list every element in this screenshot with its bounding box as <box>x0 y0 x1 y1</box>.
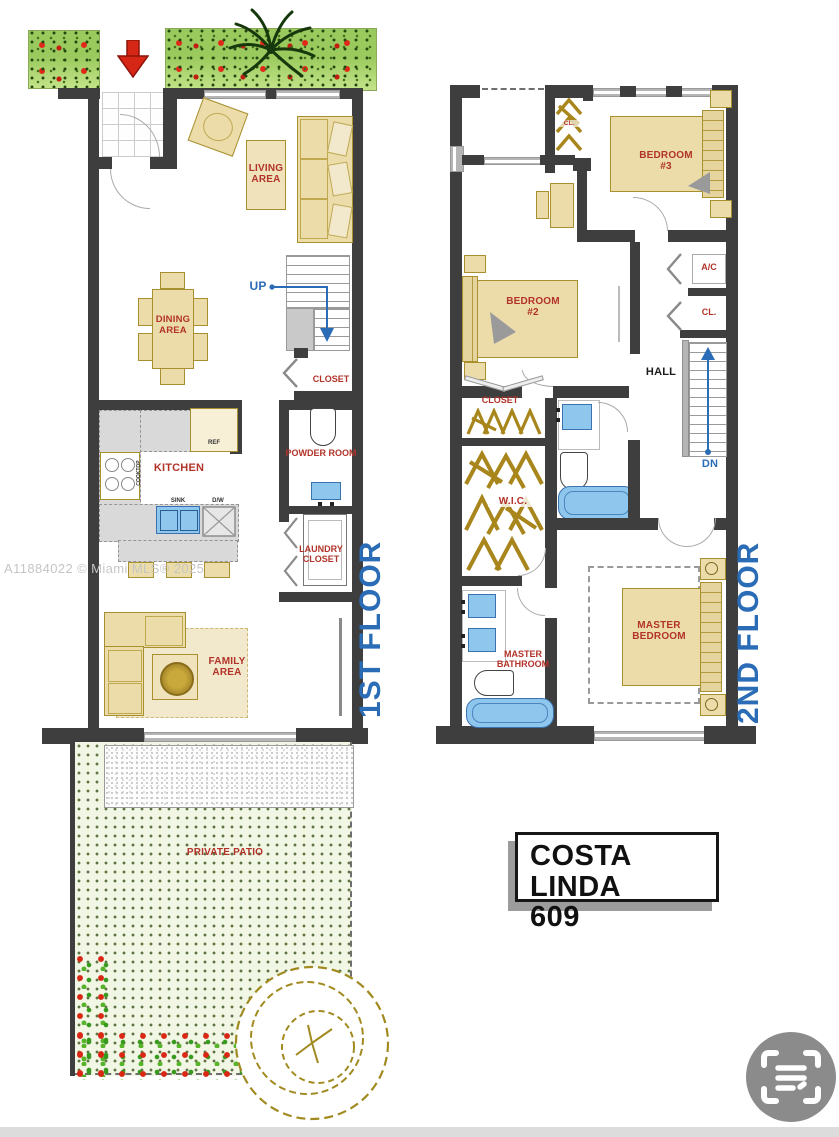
wall-segment <box>436 726 594 744</box>
closet2-label: CLOSET <box>468 396 532 406</box>
ac-door-fold <box>664 252 684 286</box>
patio-slab <box>104 745 354 808</box>
page-edge <box>0 1127 839 1137</box>
unit-plate-number: 609 <box>530 902 706 933</box>
wall-segment <box>540 155 575 165</box>
nightstand <box>700 558 726 580</box>
headboard <box>700 582 722 692</box>
sofa <box>297 116 353 243</box>
scan-logo-icon <box>744 1030 838 1124</box>
master-bathroom-label: MASTER BATHROOM <box>488 650 558 670</box>
bedroom3-label: BEDROOM #3 <box>634 150 698 172</box>
wall-segment <box>450 576 522 586</box>
second-floor-title: 2ND FLOOR <box>732 540 782 726</box>
wall-segment <box>163 88 177 161</box>
sectional-sofa <box>104 612 186 648</box>
palm-tree-icon <box>222 2 320 98</box>
garden-strip-left <box>28 30 100 89</box>
inner-entry-door-arc <box>110 169 150 209</box>
bathroom-sink <box>562 404 592 430</box>
toilet <box>560 452 588 490</box>
stair-railing <box>682 340 689 457</box>
nightstand <box>464 255 486 273</box>
ref-label: REF <box>198 440 230 446</box>
bathtub <box>558 486 636 520</box>
unit-plate-name: COSTA LINDA <box>530 841 706 902</box>
wall-segment <box>279 592 363 602</box>
unit-plate: COSTA LINDA 609 <box>515 832 719 902</box>
sectional-sofa <box>104 646 144 716</box>
wic-label: W.I.C. <box>488 496 538 507</box>
desk <box>550 183 574 228</box>
wall-segment <box>462 155 484 165</box>
bedroom3-door-arc <box>633 197 668 231</box>
living-area-label: LIVING AREA <box>243 163 289 185</box>
wall-segment <box>150 157 177 169</box>
stair-up-route <box>246 272 346 348</box>
ac-label: A/C <box>692 263 726 273</box>
window <box>593 88 715 97</box>
bathroom-sink <box>468 628 496 652</box>
wall-segment <box>583 85 593 101</box>
hanger-rack <box>555 98 583 160</box>
dw-label: D/W <box>203 498 233 504</box>
wall-segment <box>294 391 363 400</box>
nightstand <box>700 694 726 716</box>
wall-segment <box>628 440 640 520</box>
wall-segment <box>666 86 682 97</box>
powder-sink <box>311 482 341 500</box>
dishwasher <box>202 506 236 537</box>
wall-segment <box>620 86 636 97</box>
coffee-table <box>152 654 198 700</box>
headboard <box>462 276 478 362</box>
wall-segment <box>462 438 545 446</box>
wall-segment <box>279 400 289 522</box>
ceiling-fan <box>618 286 620 342</box>
master-door-arc <box>658 518 687 547</box>
stair-down-route <box>697 344 721 462</box>
bathroom-sink <box>468 594 496 618</box>
wall-segment <box>88 157 112 169</box>
wall-segment <box>630 242 640 354</box>
dn-label: DN <box>698 458 722 470</box>
dining-chair <box>138 333 153 361</box>
bathtub <box>466 698 554 728</box>
wall-segment <box>714 518 728 530</box>
flower-bed <box>75 1030 247 1080</box>
master-door-arc <box>687 518 716 547</box>
window <box>594 731 706 741</box>
window <box>484 157 542 165</box>
mls-watermark: A11884022 © Miami MLS® 2025 <box>4 561 204 576</box>
closet-door-fold <box>281 357 299 389</box>
sink-label: SINK <box>160 498 196 504</box>
wall-segment <box>668 230 738 242</box>
master-bath-door-arc <box>517 588 545 616</box>
media-console <box>339 618 342 716</box>
kitchen-island <box>118 540 238 562</box>
private-patio-label: PRIVATE PATIO <box>182 847 268 858</box>
toilet <box>310 408 336 446</box>
hall-label: HALL <box>638 366 684 378</box>
wall-segment <box>704 726 756 744</box>
dining-chair <box>193 333 208 361</box>
hanger-rack <box>466 408 542 436</box>
dining-chair <box>160 368 185 385</box>
closet-label: CLOSET <box>300 375 362 385</box>
cl-label: CL. <box>692 308 726 318</box>
powder-room-label: POWDER ROOM <box>284 449 358 459</box>
window <box>204 90 266 99</box>
hall-bath-door-arc <box>598 402 628 432</box>
dining-area-label: DINING AREA <box>143 315 203 336</box>
blanket-fold <box>688 172 712 196</box>
wall-segment <box>285 506 363 514</box>
wall-segment <box>545 398 557 588</box>
wall-segment <box>680 330 732 338</box>
sliding-door <box>144 732 300 742</box>
cooktop <box>100 452 140 500</box>
laundry-closet-label: LAUNDRY CLOSET <box>282 545 360 565</box>
patio-tree-icon <box>228 950 396 1135</box>
top-closet-label: CL. <box>558 120 580 127</box>
wall-segment <box>688 288 732 296</box>
dining-chair <box>160 272 185 289</box>
kitchen-sink <box>156 506 200 534</box>
window <box>276 90 340 99</box>
first-floor-title: 1ST FLOOR <box>354 538 402 720</box>
wall-segment <box>553 386 629 398</box>
cl-door-fold <box>664 300 684 332</box>
wall-segment <box>450 85 462 738</box>
floor-plan-page: ENTRANCE LIVING AREA UP DINING AREA <box>0 0 839 1137</box>
wall-segment <box>628 518 658 530</box>
nightstand <box>710 200 732 218</box>
wall-segment <box>88 88 99 740</box>
wall-segment <box>577 230 635 242</box>
open-to-below <box>482 88 544 93</box>
family-area-label: FAMILY AREA <box>196 656 258 678</box>
armchair <box>188 97 249 157</box>
entrance-arrow-icon <box>117 40 149 78</box>
kitchen-label: KITCHEN <box>146 462 212 474</box>
bar-stool <box>204 562 230 578</box>
master-bedroom-label: MASTER BEDROOM <box>628 620 690 642</box>
wall-segment <box>545 518 641 530</box>
desk-chair <box>536 191 549 219</box>
toilet <box>474 670 514 696</box>
bedroom2-label: BEDROOM #2 <box>500 296 566 318</box>
nightstand <box>710 90 732 108</box>
cooktop-label: COOKTOP <box>136 453 142 493</box>
